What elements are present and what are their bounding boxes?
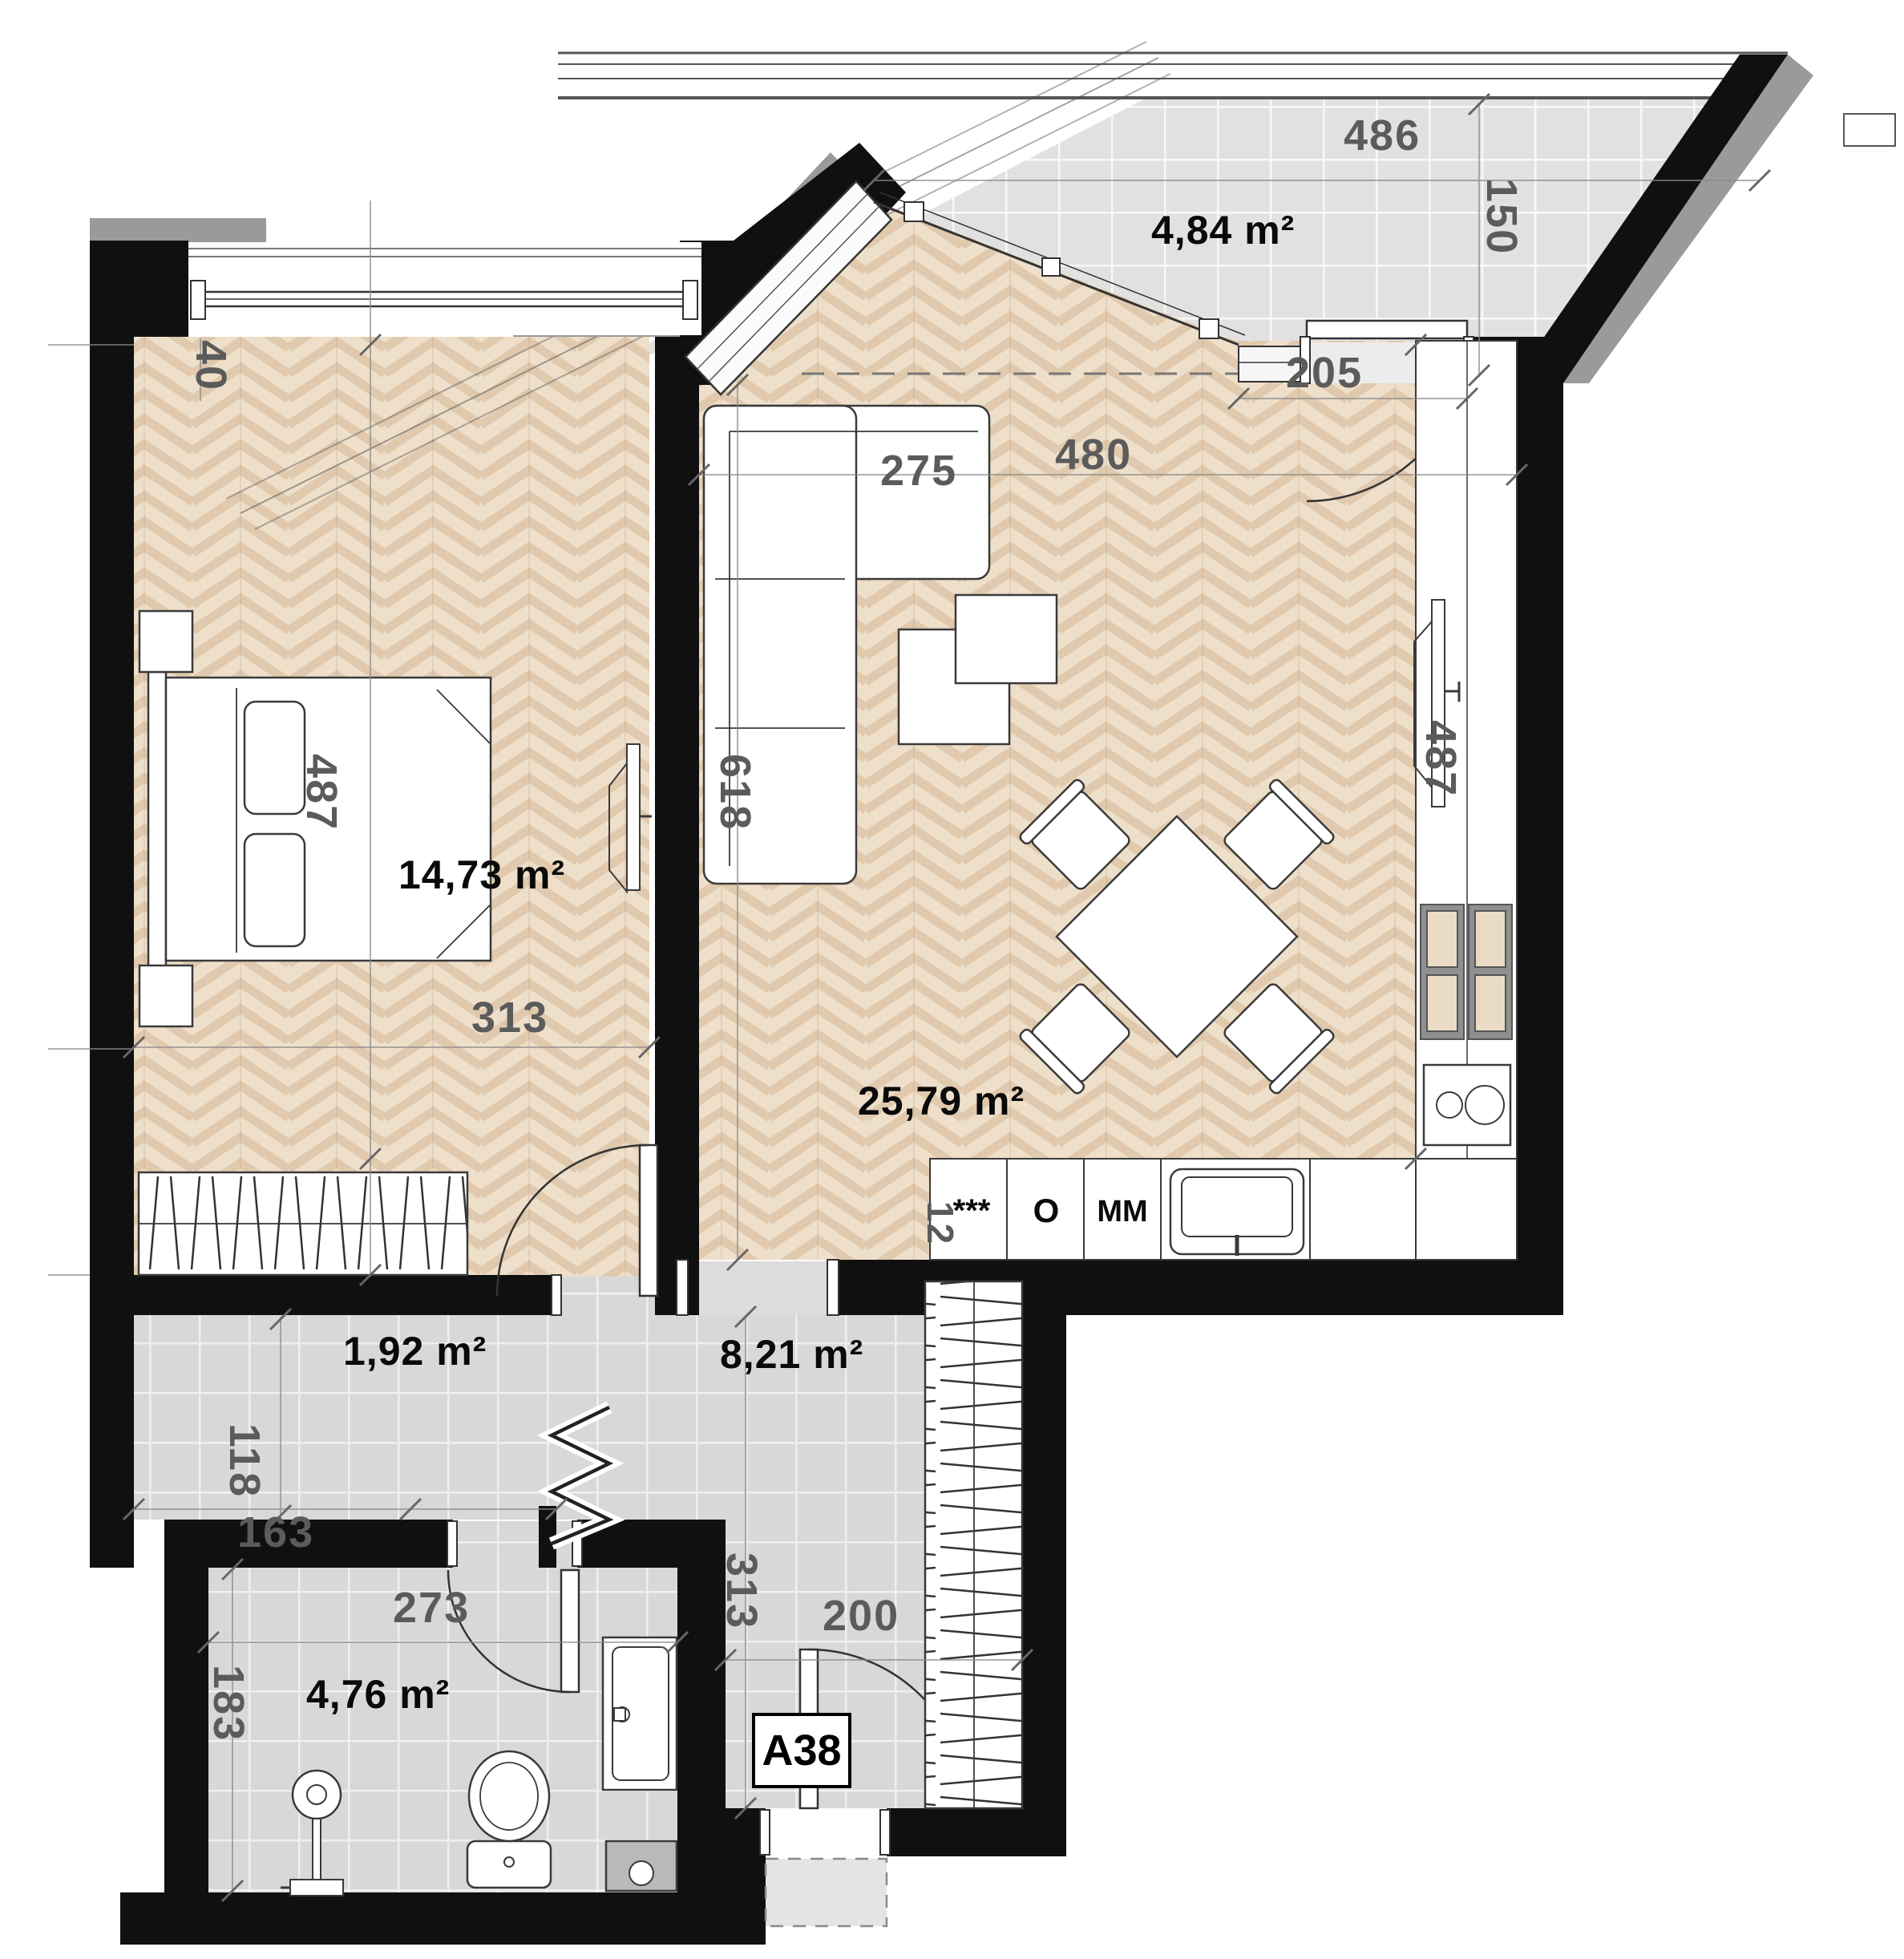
pillow xyxy=(245,834,305,946)
nightstand xyxy=(139,965,192,1026)
bed-headboard xyxy=(148,672,166,967)
wall-bedroom-bottom xyxy=(90,1275,556,1315)
pillow xyxy=(245,702,305,814)
wall-entrance-right xyxy=(887,1808,1066,1856)
dim-living-height: 618 xyxy=(713,754,757,831)
living-area-label: 25,79 m² xyxy=(858,1081,1025,1121)
unit-number-badge: A38 xyxy=(752,1713,851,1788)
closet-area-label: 1,92 m² xyxy=(343,1331,487,1371)
dim-balcony-door: 205 xyxy=(1286,351,1363,395)
wall-entrance-left xyxy=(677,1808,766,1856)
dim-balcony-depth: 150 xyxy=(1480,178,1523,255)
wall-bathroom-bottom xyxy=(120,1892,766,1945)
kitchen-oven-label: O xyxy=(1009,1192,1084,1230)
nightstand xyxy=(139,611,192,672)
bathroom-area-label: 4,76 m² xyxy=(306,1674,450,1714)
toilet xyxy=(467,1751,551,1888)
dim-living-width: 480 xyxy=(1055,433,1132,476)
wall-bedroom-top-left xyxy=(90,241,188,337)
wall-right xyxy=(1517,337,1563,1315)
balcony-door-leaf xyxy=(1307,321,1467,338)
dim-balcony-width: 486 xyxy=(1344,114,1421,157)
floor-plan: 14,73 m² 25,79 m² 4,84 m² 8,21 m² 1,92 m… xyxy=(0,0,1904,1959)
shower-tray xyxy=(606,1841,677,1891)
hallway-wardrobe xyxy=(925,1281,1022,1808)
dim-window-40: 40 xyxy=(189,340,232,391)
dim-bathroom-width: 273 xyxy=(393,1586,470,1629)
dim-bathroom-height: 183 xyxy=(207,1665,250,1742)
dim-sofa-275: 275 xyxy=(880,449,957,492)
dining-table xyxy=(1018,778,1336,1095)
bathroom-door-leaf xyxy=(561,1570,579,1692)
wall-hall-right xyxy=(1022,1315,1066,1856)
wall-left xyxy=(90,241,134,1568)
bedroom-wardrobe xyxy=(139,1172,467,1275)
bedroom-door-leaf xyxy=(640,1145,657,1296)
bedroom-area-label: 14,73 m² xyxy=(398,855,565,895)
balcony-area-label: 4,84 m² xyxy=(1151,210,1295,250)
dim-bedroom-width: 313 xyxy=(471,996,548,1039)
hallway-area-label: 8,21 m² xyxy=(720,1334,863,1374)
entrance-threshold xyxy=(766,1859,887,1926)
wall-bathroom-left xyxy=(164,1520,208,1945)
dim-kitchen-height: 487 xyxy=(1419,720,1462,797)
bathroom-vanity xyxy=(603,1637,677,1790)
dim-closet-118: 118 xyxy=(223,1423,266,1498)
kitchen-microwave-label: MM xyxy=(1084,1195,1161,1229)
dim-wall-12: 12 xyxy=(922,1201,959,1245)
dim-closet-163: 163 xyxy=(237,1511,314,1554)
stove xyxy=(1424,1065,1510,1145)
bedroom-window xyxy=(188,242,701,335)
wall-divider-bedroom-living xyxy=(655,337,699,1315)
living-hall-opening-floor xyxy=(683,1261,832,1315)
floor-plan-drawing xyxy=(0,0,1904,1959)
dim-hall-width: 200 xyxy=(823,1594,899,1637)
dim-hall-height: 313 xyxy=(720,1552,763,1629)
wall-hall-corner xyxy=(726,1856,766,1945)
dim-bedroom-height: 487 xyxy=(300,754,343,831)
